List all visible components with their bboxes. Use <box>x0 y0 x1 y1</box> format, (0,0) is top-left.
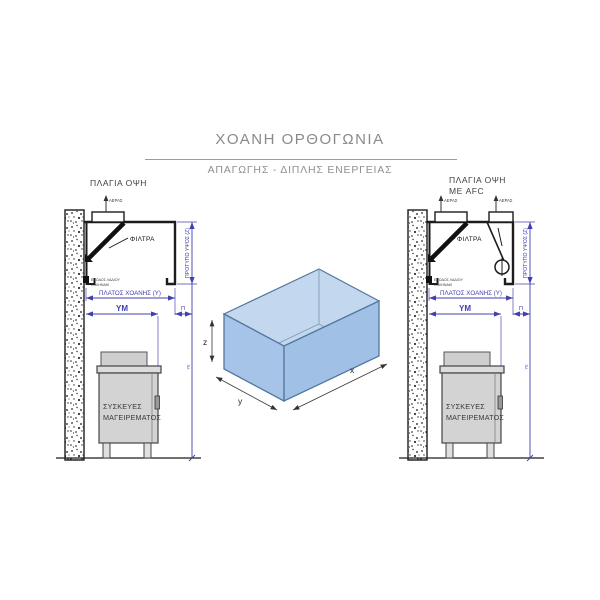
appliance-leg <box>144 443 151 458</box>
floor-height-label: ΥΕ <box>524 364 529 370</box>
exhaust-duct <box>435 212 467 222</box>
overhang-label: Π <box>519 306 523 312</box>
right-view-caption-1: ΠΛΑΓΙΑ ΟΨΗ <box>449 175 506 185</box>
afc-damper-blade <box>498 228 502 246</box>
oil-outlet-label-2: ΣΩΛΗΝΑΚΙ <box>434 283 452 287</box>
hood-outline <box>84 222 175 284</box>
standard-height-label: ΠΡΟΤΥΠΟ ΥΨΟΣ (Ζ) <box>523 228 529 278</box>
ym-label: ΥΜ <box>116 304 128 313</box>
appliance-label-1: ΣΥΣΚΕΥΕΣ <box>103 402 142 411</box>
air-arrowhead <box>494 195 499 201</box>
filter-leader-line <box>438 238 455 250</box>
y-axis-label: y <box>238 396 243 406</box>
hood-width-label: ΠΛΑΤΟΣ ΧΟΑΝΗΣ (Υ) <box>99 290 161 297</box>
appliance-handle <box>155 396 160 409</box>
right-view-caption-2: ΜΕ AFC <box>449 186 484 196</box>
appliance-backsplash <box>101 352 147 366</box>
oil-outlet-label-2: ΣΩΛΗΝΑΚΙ <box>91 283 109 287</box>
appliance-backsplash <box>444 352 490 366</box>
appliance-leg <box>487 443 494 458</box>
overhang-label: Π <box>181 306 185 312</box>
page-background: { "header": { "title": "ΧΟΑΝΗ ΟΡΘΟΓΩΝΙΑ"… <box>0 0 600 600</box>
air-arrowhead <box>439 195 444 201</box>
filter-label: ΦΙΛΤΡΑ <box>130 236 155 243</box>
appliance-label-1: ΣΥΣΚΕΥΕΣ <box>446 402 485 411</box>
ym-label: ΥΜ <box>459 304 471 313</box>
exhaust-duct <box>92 212 124 222</box>
oil-outlet <box>83 276 89 283</box>
z-axis-label: z <box>203 337 207 347</box>
oil-outlet-label-1: ΕΞΟΔΟΣ ΛΑΔΙΟΥ <box>91 278 120 282</box>
oil-outlet <box>426 276 432 283</box>
technical-drawing: ΠΛΑΓΙΑ ΟΨΗ ΑΕΡΑΣ ΦΙΛΤΡΑ ΕΞΟΔΟΣ ΛΑΔΙΟΥ ΣΩ… <box>0 0 600 600</box>
right-side-view-afc: ΠΛΑΓΙΑ ΟΨΗ ΜΕ AFC ΑΕΡΑΣ ΑΕΡΑΣ ΦΙΛΤΡΑ ΕΞΟ… <box>399 175 544 461</box>
wall-section <box>408 210 427 460</box>
air-arrowhead <box>104 195 109 201</box>
isometric-hood-box: z y x <box>203 269 387 410</box>
appliance-label-2: ΜΑΓΕΙΡΕΜΑΤΟΣ <box>446 413 504 422</box>
wall-section <box>65 210 84 460</box>
filter-leader-line <box>109 238 128 248</box>
appliance-leg <box>103 443 110 458</box>
appliance-handle <box>498 396 503 409</box>
cooking-appliance: ΣΥΣΚΕΥΕΣ ΜΑΓΕΙΡΕΜΑΤΟΣ <box>440 352 504 458</box>
oil-outlet-label-1: ΕΞΟΔΟΣ ΛΑΔΙΟΥ <box>434 278 463 282</box>
standard-height-label: ΠΡΟΤΥΠΟ ΥΨΟΣ (Ζ) <box>185 228 191 278</box>
floor-height-label: ΥΕ <box>186 364 191 370</box>
filter-label: ΦΙΛΤΡΑ <box>457 236 482 243</box>
appliance-counter <box>97 366 161 373</box>
cooking-appliance: ΣΥΣΚΕΥΕΣ ΜΑΓΕΙΡΕΜΑΤΟΣ <box>97 352 161 458</box>
appliance-leg <box>446 443 453 458</box>
filter-panel <box>88 223 124 259</box>
air-label: ΑΕΡΑΣ <box>499 198 513 203</box>
left-side-view: ΠΛΑΓΙΑ ΟΨΗ ΑΕΡΑΣ ΦΙΛΤΡΑ ΕΞΟΔΟΣ ΛΑΔΙΟΥ ΣΩ… <box>56 178 201 461</box>
appliance-counter <box>440 366 504 373</box>
air-label: ΑΕΡΑΣ <box>109 198 123 203</box>
appliance-label-2: ΜΑΓΕΙΡΕΜΑΤΟΣ <box>103 413 161 422</box>
air-label: ΑΕΡΑΣ <box>444 198 458 203</box>
supply-duct <box>489 212 513 222</box>
left-view-caption: ΠΛΑΓΙΑ ΟΨΗ <box>90 178 147 188</box>
hood-width-label: ΠΛΑΤΟΣ ΧΟΑΝΗΣ (Υ) <box>440 290 502 297</box>
